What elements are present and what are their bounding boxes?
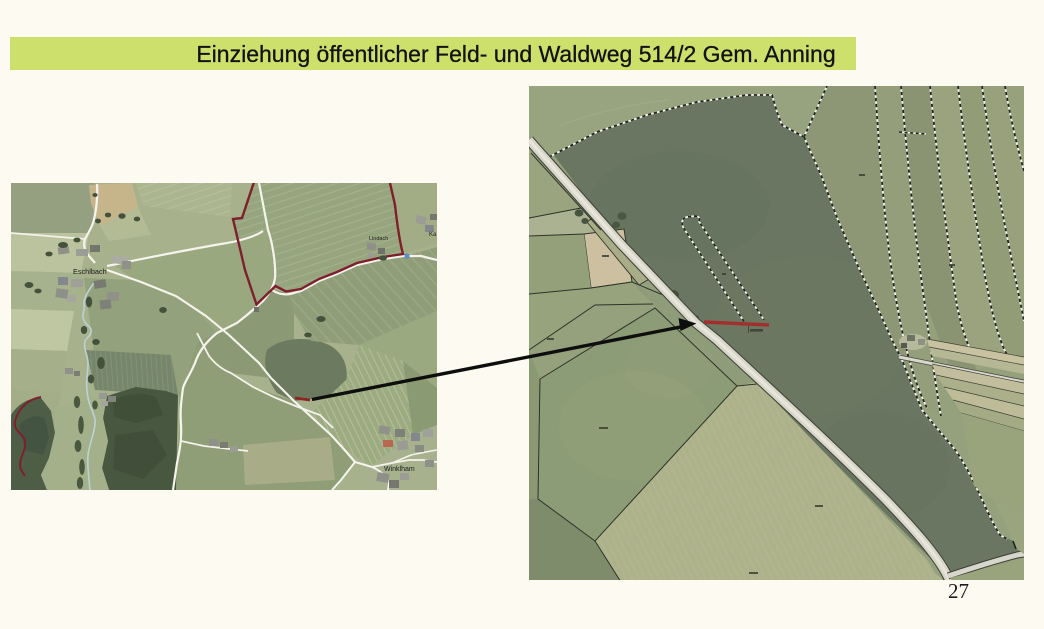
svg-text:Eschlbach: Eschlbach	[73, 267, 107, 276]
svg-text:Winklham: Winklham	[384, 466, 415, 473]
svg-text:27: 27	[948, 579, 969, 603]
svg-text:Ka: Ka	[429, 232, 437, 238]
svg-text:Einziehung öffentlicher Feld-: Einziehung öffentlicher Feld- und Waldwe…	[196, 41, 835, 67]
svg-text:Lindach: Lindach	[369, 236, 388, 242]
